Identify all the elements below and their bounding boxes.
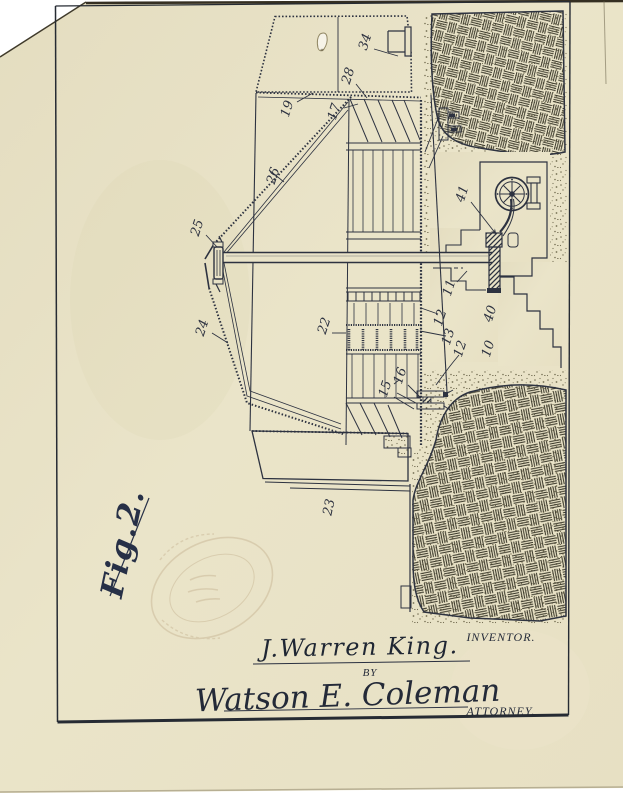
earth-hatch-upper (431, 11, 565, 155)
drive-shaft (222, 252, 492, 263)
scanned-patent-page: 34 28 19 17 26 25 24 22 41 11 12 13 12 4… (0, 0, 623, 802)
patent-drawing-canvas: 34 28 19 17 26 25 24 22 41 11 12 13 12 4… (0, 0, 623, 802)
inventor-title-label: INVENTOR. (465, 630, 535, 644)
paper-blotch (70, 160, 250, 440)
inventor-signature: J.Warren King. (256, 631, 459, 663)
